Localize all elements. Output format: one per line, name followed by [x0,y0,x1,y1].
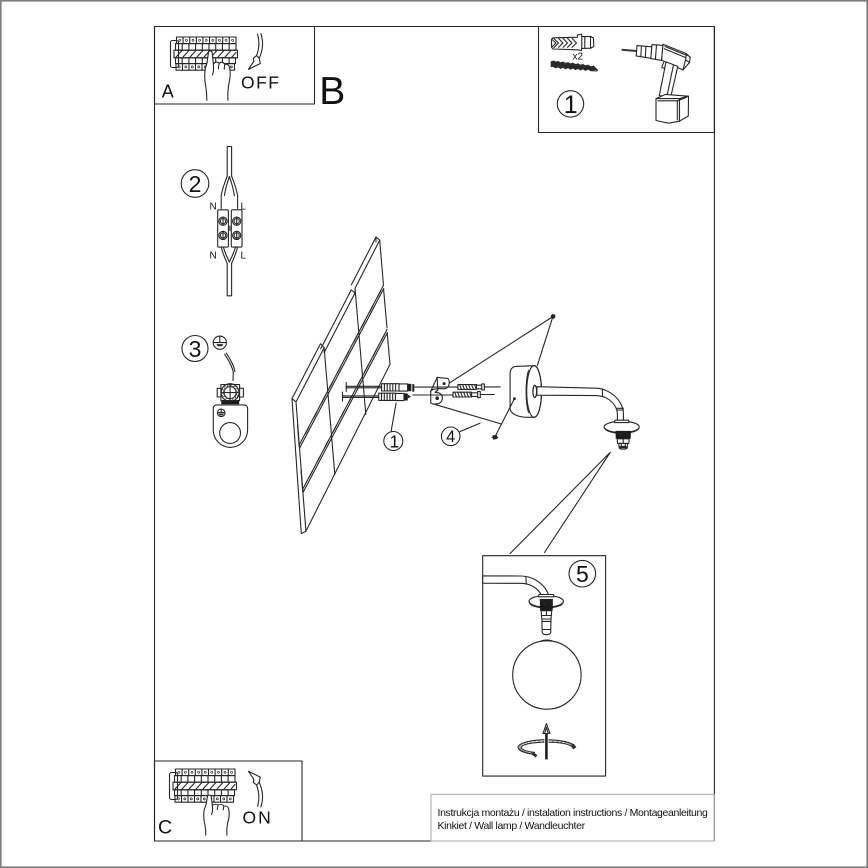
svg-text:1: 1 [390,431,400,451]
svg-text:5: 5 [576,561,589,587]
svg-text:OFF: OFF [241,73,281,93]
svg-text:2: 2 [189,171,202,197]
svg-text:Instrukcja montażu / instalati: Instrukcja montażu / instalation instruc… [438,807,709,819]
svg-text:L: L [241,202,247,213]
svg-text:N: N [210,202,217,213]
svg-text:N: N [210,251,217,262]
svg-text:1: 1 [564,91,578,119]
svg-text:Kinkiet / Wall lamp / Wandleuc: Kinkiet / Wall lamp / Wandleuchter [438,820,586,832]
svg-text:3: 3 [189,336,202,362]
svg-text:x2: x2 [573,51,584,62]
svg-text:4: 4 [446,428,455,446]
svg-text:B: B [319,70,345,113]
svg-text:A: A [162,82,174,102]
svg-text:C: C [158,817,172,839]
svg-text:ON: ON [243,808,273,828]
svg-text:L: L [241,251,247,262]
